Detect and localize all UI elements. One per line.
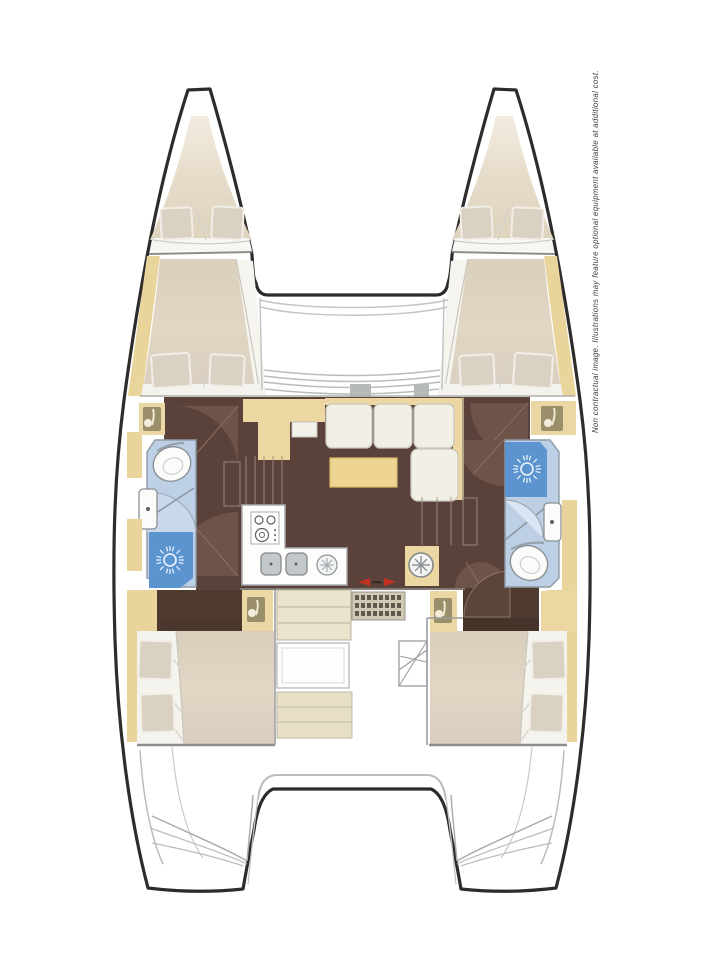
svg-text:Non contractual image. Illustr: Non contractual image. Illustrations may… [591,70,600,433]
